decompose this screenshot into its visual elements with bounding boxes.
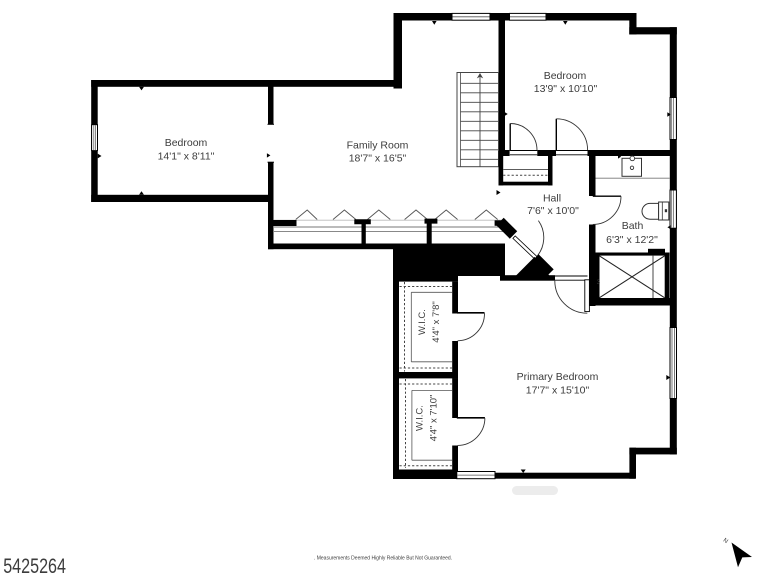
svg-text:Hall: Hall [543, 193, 561, 205]
svg-text:14'1" x 8'11": 14'1" x 8'11" [158, 151, 215, 163]
svg-text:5425264: 5425264 [3, 555, 66, 576]
svg-text:6'3" x 12'2": 6'3" x 12'2" [606, 234, 658, 246]
svg-text:. Measurements Deemed Highly R: . Measurements Deemed Highly Reliable Bu… [314, 556, 452, 562]
svg-text:4'4" x 7'8": 4'4" x 7'8" [431, 301, 442, 343]
svg-text:W.I.C.: W.I.C. [417, 309, 428, 335]
svg-text:17'7" x 15'10": 17'7" x 15'10" [526, 384, 590, 396]
svg-text:7'6" x 10'0": 7'6" x 10'0" [527, 205, 579, 217]
svg-text:18'7" x 16'5": 18'7" x 16'5" [349, 153, 407, 165]
svg-text:Family Room: Family Room [347, 140, 409, 152]
svg-text:Primary Bedroom: Primary Bedroom [517, 371, 599, 383]
svg-text:Bedroom: Bedroom [544, 70, 587, 82]
svg-text:Bedroom: Bedroom [165, 137, 208, 149]
svg-text:4'4" x 7'10": 4'4" x 7'10" [429, 395, 440, 442]
svg-text:W.I.C.: W.I.C. [415, 405, 426, 431]
svg-text:13'9" x 10'10": 13'9" x 10'10" [534, 83, 598, 95]
svg-text:Bath: Bath [622, 220, 644, 232]
